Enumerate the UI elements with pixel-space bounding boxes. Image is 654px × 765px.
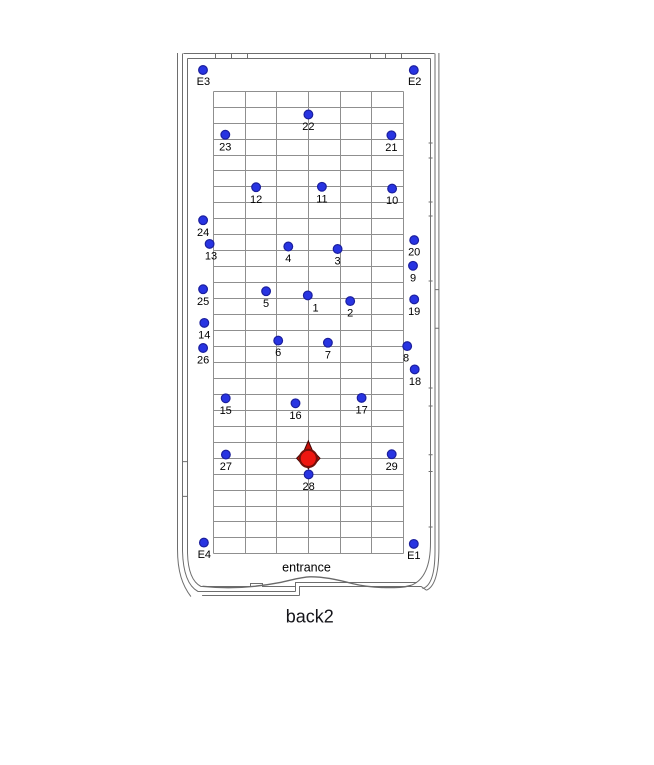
svg-text:28: 28 xyxy=(302,481,314,493)
svg-text:5: 5 xyxy=(263,298,269,310)
svg-text:29: 29 xyxy=(386,461,398,473)
svg-text:E3: E3 xyxy=(197,76,210,88)
svg-text:26: 26 xyxy=(197,355,209,367)
svg-text:10: 10 xyxy=(386,195,398,207)
svg-text:back2: back2 xyxy=(286,607,334,627)
svg-text:17: 17 xyxy=(355,405,367,417)
svg-text:E1: E1 xyxy=(407,550,420,562)
svg-text:11: 11 xyxy=(316,193,327,205)
svg-text:14: 14 xyxy=(198,330,210,342)
svg-text:7: 7 xyxy=(325,349,331,361)
svg-text:18: 18 xyxy=(409,376,421,388)
svg-text:21: 21 xyxy=(385,142,397,154)
svg-text:15: 15 xyxy=(220,405,232,417)
svg-text:entrance: entrance xyxy=(282,561,331,575)
svg-text:6: 6 xyxy=(275,347,281,359)
svg-text:1: 1 xyxy=(312,302,318,314)
svg-text:8: 8 xyxy=(403,353,409,365)
svg-text:E4: E4 xyxy=(198,549,211,561)
svg-text:E2: E2 xyxy=(408,76,421,88)
svg-text:12: 12 xyxy=(250,194,262,206)
svg-text:3: 3 xyxy=(335,256,341,268)
svg-text:2: 2 xyxy=(347,308,353,320)
svg-text:22: 22 xyxy=(302,121,314,133)
svg-text:16: 16 xyxy=(289,410,301,422)
svg-text:20: 20 xyxy=(408,247,420,259)
svg-text:25: 25 xyxy=(197,296,209,308)
svg-text:13: 13 xyxy=(205,251,217,263)
svg-text:9: 9 xyxy=(410,272,416,284)
svg-text:23: 23 xyxy=(219,141,231,153)
svg-text:4: 4 xyxy=(285,253,291,265)
svg-text:19: 19 xyxy=(408,306,420,318)
svg-text:24: 24 xyxy=(197,227,209,239)
svg-text:27: 27 xyxy=(220,461,232,473)
